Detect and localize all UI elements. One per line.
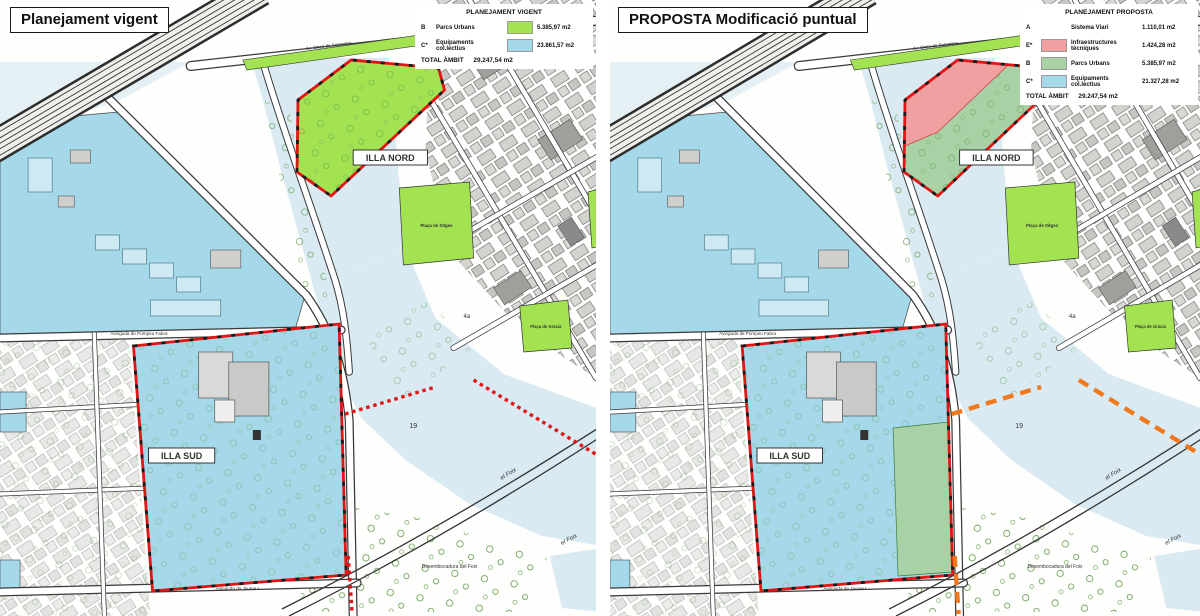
svg-text:4a: 4a xyxy=(1069,314,1076,320)
panel-right: ILLA NORD ILLA SUD Av. Onze de Setembre … xyxy=(610,0,1200,616)
svg-text:ILLA NORD: ILLA NORD xyxy=(366,153,415,163)
residential-southwest xyxy=(610,331,759,616)
map-title-vigent: Planejament vigent xyxy=(10,7,169,33)
svg-text:Desembocadura del Foix: Desembocadura del Foix xyxy=(422,564,478,570)
svg-text:Desembocadura del Foix: Desembocadura del Foix xyxy=(1027,564,1083,570)
residential-southwest xyxy=(0,331,151,616)
illa-nord-label: ILLA NORD xyxy=(353,150,427,165)
swatch-infraestructures xyxy=(1041,39,1067,52)
illa-sud-park-strip xyxy=(893,422,953,576)
comparison-sheet: ILLA NORD ILLA SUD Av. Onze de Setembre … xyxy=(0,0,1200,616)
svg-text:Plaça de Gràcia: Plaça de Gràcia xyxy=(530,324,562,329)
svg-text:19: 19 xyxy=(1015,423,1023,430)
legend-row-parcs: B Parcs Urbans 5.385,97 m2 xyxy=(421,21,587,34)
legend-total: TOTAL ÀMBIT 29.247,54 m2 xyxy=(421,57,587,64)
swatch-equipaments xyxy=(1041,75,1067,88)
svg-text:19: 19 xyxy=(409,423,417,430)
illa-sud-label: ILLA SUD xyxy=(757,448,823,463)
swatch-parcs-urbans xyxy=(507,21,533,34)
svg-text:ILLA NORD: ILLA NORD xyxy=(972,153,1021,163)
svg-text:Plaça de Gràcia: Plaça de Gràcia xyxy=(1135,324,1167,329)
legend-row-infraestructures: E* Infraestructures tècniques 1.424,28 m… xyxy=(1026,39,1192,52)
svg-text:Plaça de Sitges: Plaça de Sitges xyxy=(420,223,453,228)
illa-sud-label: ILLA SUD xyxy=(148,448,214,463)
svg-text:4a: 4a xyxy=(464,314,471,320)
legend-title: PLANEJAMENT PROPOSTA xyxy=(1026,9,1192,16)
svg-text:ILLA SUD: ILLA SUD xyxy=(161,451,203,461)
legend-row-sistema-viari: A Sistema Viari 1.110,01 m2 xyxy=(1026,21,1192,34)
panel-left: ILLA NORD ILLA SUD Av. Onze de Setembre … xyxy=(0,0,596,616)
legend-row-equipaments: C* Equipaments col.lectius 21.327,28 m2 xyxy=(1026,75,1192,88)
legend-title: PLANEJAMENT VIGENT xyxy=(421,9,587,16)
legend-vigent: PLANEJAMENT VIGENT B Parcs Urbans 5.385,… xyxy=(415,4,593,69)
svg-text:Avinguda de Jaume I: Avinguda de Jaume I xyxy=(824,586,867,591)
city-plan-map: ILLA NORD ILLA SUD Av. Onze de Setembre … xyxy=(0,0,596,616)
map-title-proposta: PROPOSTA Modificació puntual xyxy=(618,7,868,33)
illa-nord-label: ILLA NORD xyxy=(960,150,1034,165)
swatch-equipaments xyxy=(507,39,533,52)
legend-row-parcs: B Parcs Urbans 5.385,97 m2 xyxy=(1026,57,1192,70)
legend-row-equipaments: C* Equipaments col.lectius 23.861,57 m2 xyxy=(421,39,587,52)
legend-proposta: PLANEJAMENT PROPOSTA A Sistema Viari 1.1… xyxy=(1020,4,1198,105)
svg-text:Plaça de Sitges: Plaça de Sitges xyxy=(1026,223,1059,228)
map-canvas-left: ILLA NORD ILLA SUD Av. Onze de Setembre … xyxy=(0,0,596,616)
svg-text:Avinguda de Jaume I: Avinguda de Jaume I xyxy=(216,586,259,591)
svg-text:Avinguda de Pompeu Fabra: Avinguda de Pompeu Fabra xyxy=(110,331,168,336)
svg-text:Avinguda de Pompeu Fabra: Avinguda de Pompeu Fabra xyxy=(719,331,776,336)
legend-total: TOTAL ÀMBIT 29.247,54 m2 xyxy=(1026,93,1192,100)
swatch-parcs-urbans xyxy=(1041,57,1067,70)
svg-text:ILLA SUD: ILLA SUD xyxy=(769,451,810,461)
